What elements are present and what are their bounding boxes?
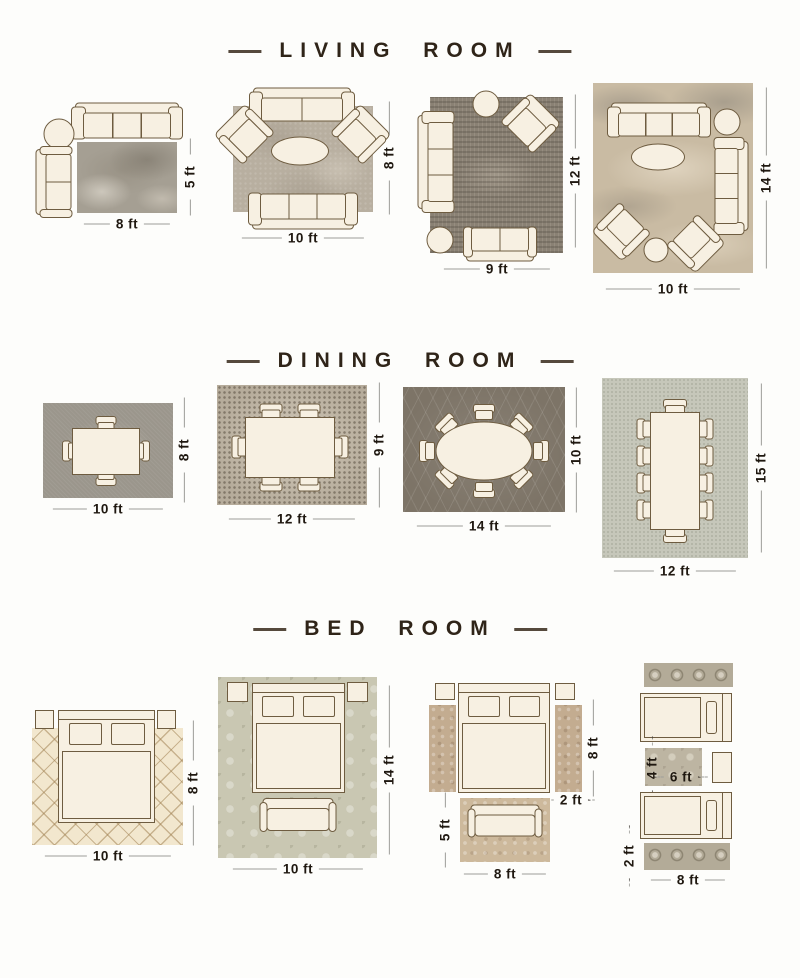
- width-dimension: 14 ft: [417, 519, 551, 534]
- sofa-3-seat: [71, 103, 183, 140]
- oval-dining-table: [436, 422, 533, 481]
- oval-coffee-table: [631, 144, 685, 171]
- dining-chair: [473, 404, 495, 420]
- loveseat: [249, 88, 355, 123]
- nightstand: [227, 682, 248, 702]
- runner-rug: [555, 705, 582, 792]
- pillow: [468, 696, 500, 718]
- twin-bed: [640, 693, 732, 742]
- section-title-text: LIVING ROOM: [279, 39, 520, 63]
- nightstand: [347, 682, 368, 702]
- width-dimension: 10 ft: [606, 282, 740, 297]
- loveseat: [463, 227, 537, 262]
- rug-size-guide: LIVING ROOM 5 ft 8 ft 8 ft 10 ft 12 ft 9…: [0, 0, 800, 978]
- bench: [468, 805, 543, 838]
- sofa-3-seat: [714, 137, 749, 235]
- bed: [458, 683, 550, 793]
- width-dimension: 9 ft: [444, 262, 550, 277]
- middle-rug-width-dimension: 6 ft: [654, 770, 708, 785]
- height-dimension: 10 ft: [561, 388, 591, 513]
- dining-chair: [699, 446, 714, 467]
- runner-width-dimension: 2 ft: [547, 793, 595, 808]
- sofa-3-seat: [418, 111, 455, 213]
- dining-table: [245, 417, 335, 478]
- runner-width-dimension: 2 ft: [618, 826, 640, 887]
- nightstand: [555, 683, 575, 700]
- pillow: [509, 696, 541, 718]
- title-dash: [253, 628, 286, 631]
- nightstand: [435, 683, 455, 700]
- dining-chair: [699, 473, 714, 494]
- loveseat: [36, 146, 73, 218]
- width-dimension: 8 ft: [651, 873, 725, 888]
- runner-rug: [429, 705, 456, 792]
- sofa-3-seat: [248, 193, 358, 230]
- height-dimension: 8 ft: [378, 102, 400, 215]
- dining-table: [650, 412, 700, 530]
- height-dimension: 8 ft: [173, 398, 195, 503]
- runner-rug: [644, 843, 730, 870]
- section-title-text: DINING ROOM: [278, 349, 523, 373]
- dining-room-title: DINING ROOM: [227, 349, 574, 373]
- width-dimension: 10 ft: [45, 849, 171, 864]
- height-dimension: 14 ft: [751, 88, 781, 269]
- dining-chair: [473, 482, 495, 498]
- width-dimension: 10 ft: [53, 502, 163, 517]
- twin-bed: [640, 792, 732, 839]
- dining-chair: [419, 440, 435, 462]
- round-side-table: [714, 109, 741, 136]
- width-dimension: 10 ft: [242, 231, 364, 246]
- height-dimension: 12 ft: [560, 95, 590, 248]
- front-rug-height-dimension: 5 ft: [434, 793, 456, 868]
- height-dimension: 8 ft: [582, 700, 604, 797]
- title-dash: [227, 360, 260, 363]
- dining-chair: [699, 500, 714, 521]
- width-dimension: 12 ft: [614, 564, 736, 579]
- width-dimension: 8 ft: [464, 867, 546, 882]
- bed: [252, 683, 345, 793]
- section-title-text: BED ROOM: [304, 617, 496, 641]
- bed-room-title: BED ROOM: [253, 617, 547, 641]
- dining-chair: [699, 419, 714, 440]
- round-side-table: [44, 119, 75, 150]
- height-dimension: 14 ft: [374, 686, 404, 855]
- bed: [58, 710, 155, 823]
- nightstand: [712, 752, 732, 783]
- pillow: [111, 723, 144, 745]
- pillow: [706, 800, 717, 832]
- title-dash: [228, 50, 261, 53]
- height-dimension: 5 ft: [179, 139, 201, 216]
- title-dash: [540, 360, 573, 363]
- width-dimension: 8 ft: [84, 217, 170, 232]
- dining-chair: [533, 440, 549, 462]
- dining-table: [72, 428, 140, 475]
- nightstand: [157, 710, 176, 729]
- sofa-3-seat: [607, 103, 711, 138]
- round-side-table: [644, 238, 669, 263]
- nightstand: [35, 710, 54, 729]
- height-dimension: 9 ft: [368, 383, 390, 508]
- pillow: [706, 701, 717, 734]
- height-dimension: 8 ft: [182, 721, 204, 846]
- oval-coffee-table: [271, 137, 329, 166]
- height-dimension: 15 ft: [746, 384, 776, 553]
- title-dash: [539, 50, 572, 53]
- width-dimension: 12 ft: [229, 512, 355, 527]
- bench: [260, 798, 337, 832]
- rug: [77, 142, 177, 213]
- title-dash: [514, 628, 547, 631]
- width-dimension: 10 ft: [233, 862, 363, 877]
- round-side-table: [427, 227, 454, 254]
- pillow: [303, 696, 335, 718]
- runner-rug: [644, 663, 733, 687]
- middle-rug-height-dimension: 4 ft: [641, 737, 663, 800]
- pillow: [262, 696, 294, 718]
- pillow: [69, 723, 102, 745]
- round-side-table: [473, 91, 500, 118]
- living-room-title: LIVING ROOM: [228, 39, 571, 63]
